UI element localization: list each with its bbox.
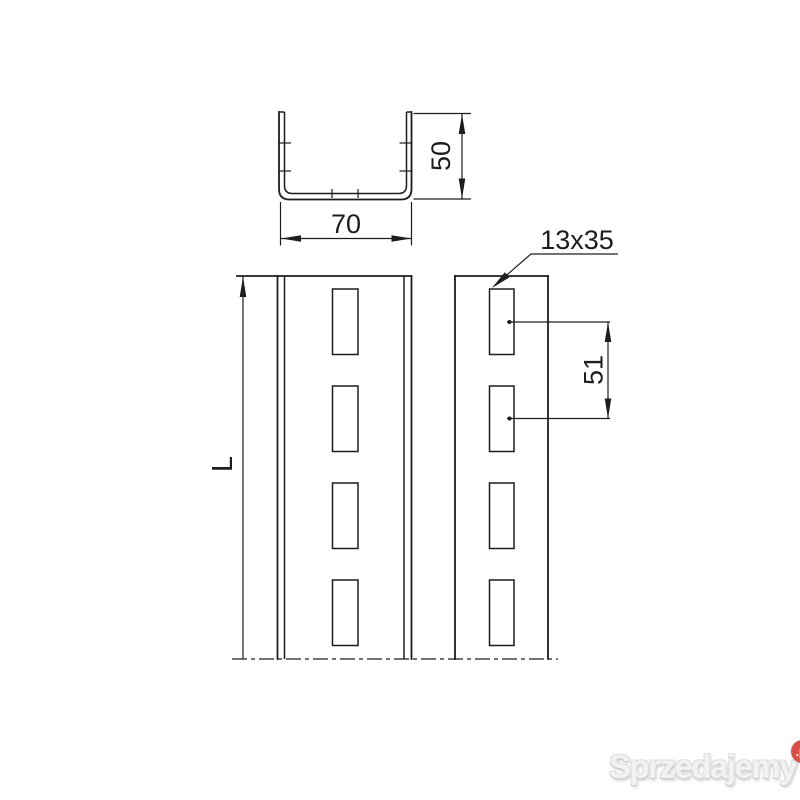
watermark-pl-label: .pl — [796, 745, 800, 759]
arrowhead-down — [605, 399, 612, 419]
dimension-length-L: L — [207, 277, 246, 660]
dimension-width-70: 70 — [281, 202, 412, 246]
length-dimension-label: L — [207, 456, 239, 472]
technical-drawing-page: 50 70 — [0, 0, 800, 800]
arrowhead-down — [459, 179, 466, 199]
arrowhead-up — [605, 322, 612, 342]
arrowhead-up — [240, 277, 247, 298]
dimension-slot-pitch-51: 51 — [507, 320, 611, 421]
height-dimension-label: 50 — [426, 141, 456, 171]
arrowhead-up — [459, 114, 466, 134]
profile-inner-contour — [285, 112, 407, 194]
slot-size-label: 13x35 — [540, 225, 614, 255]
watermark-brand-text: Sprzedajemy — [609, 750, 796, 783]
slot-size-callout: 13x35 — [492, 225, 618, 288]
perforation-slot — [490, 580, 515, 646]
side-view-left-panel — [237, 276, 412, 659]
perforation-slot — [333, 289, 359, 355]
slot-pitch-label: 51 — [579, 355, 609, 385]
cross-section-view — [278, 112, 413, 200]
cable-tray-drawing: 50 70 — [0, 0, 800, 800]
perforation-slot — [333, 483, 359, 549]
arrowhead-right — [392, 235, 412, 242]
dimension-height-50: 50 — [414, 114, 472, 200]
perforation-slot — [333, 386, 359, 452]
width-dimension-label: 70 — [331, 209, 361, 239]
arrowhead-leader — [492, 272, 509, 288]
side-view-right-panel — [455, 276, 548, 659]
perforation-slot — [333, 580, 359, 646]
arrowhead-left — [281, 235, 301, 242]
perforation-slot — [490, 483, 515, 549]
watermark: Sprzedajemy .pl — [609, 740, 800, 783]
profile-outer-contour — [279, 112, 412, 200]
